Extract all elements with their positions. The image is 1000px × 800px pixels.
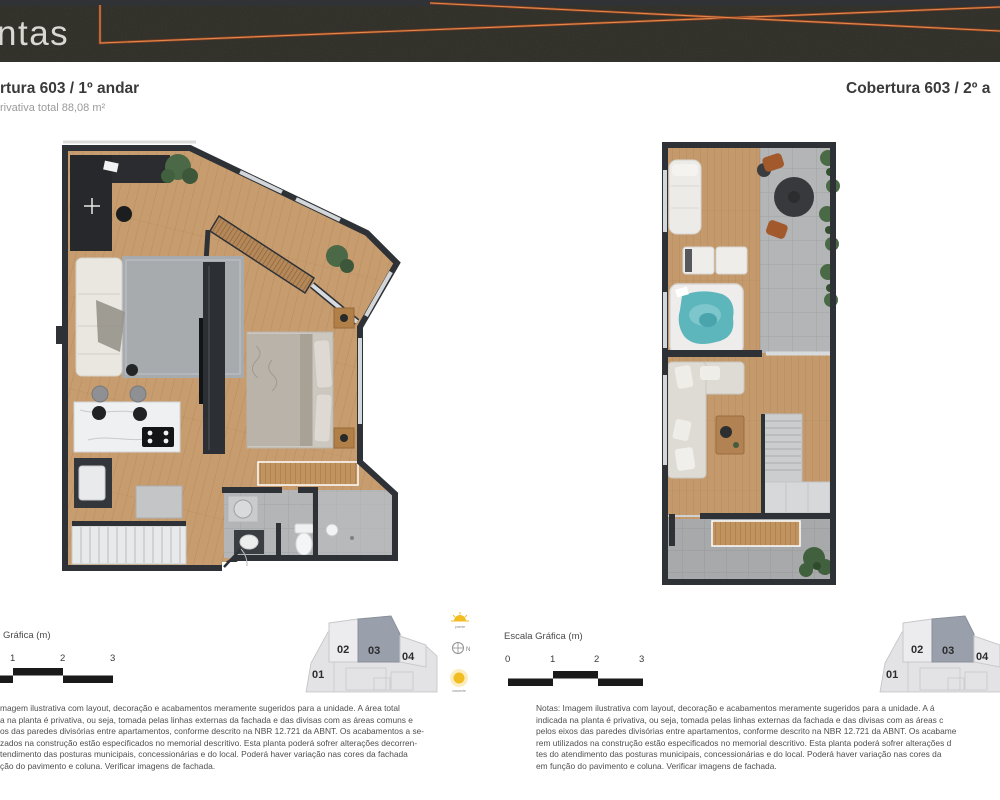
notes-line: os das paredes divisórias entre apartame… bbox=[0, 726, 482, 738]
scale-bar-left bbox=[0, 667, 116, 685]
pillow bbox=[675, 447, 696, 471]
terrace-divider-wall bbox=[665, 350, 762, 357]
stair-railing bbox=[761, 414, 765, 513]
office-chair bbox=[116, 206, 132, 222]
interior-wall bbox=[276, 523, 281, 558]
pillow bbox=[314, 394, 332, 443]
notes-line: Notas: Imagem ilustrativa com layout, de… bbox=[536, 703, 1000, 715]
shower-area bbox=[318, 492, 392, 556]
floor-drain bbox=[350, 536, 354, 540]
wall-pier bbox=[56, 326, 64, 344]
plant bbox=[182, 168, 198, 184]
scale-tick: 0 bbox=[505, 654, 510, 665]
slatted-bench bbox=[258, 462, 358, 485]
plan1-title: rtura 603 / 1º andar bbox=[0, 80, 139, 98]
sink bbox=[79, 466, 105, 500]
keyplan-unit-label: 04 bbox=[402, 651, 415, 663]
sofa bbox=[76, 258, 125, 376]
floor-plan-second-floor bbox=[650, 138, 845, 590]
tv-panel bbox=[199, 318, 203, 404]
notes-line: a na planta é privativa, ou seja, tomada… bbox=[0, 715, 482, 727]
balcony-divider-wall bbox=[700, 513, 830, 519]
notes-line: ção do pavimento e coluna. Verificar ima… bbox=[0, 761, 482, 773]
washer-door bbox=[234, 500, 252, 518]
notes-line: indicada na planta é privativa, ou seja,… bbox=[536, 715, 1000, 727]
rug bbox=[122, 256, 244, 378]
slatted-bench bbox=[712, 521, 800, 546]
notes-line: pelos eixos das paredes divisórias entre… bbox=[536, 726, 1000, 738]
scale-label-left: Gráfica (m) bbox=[3, 630, 51, 641]
sunrise-label: nascente bbox=[452, 689, 466, 693]
table-centerpiece bbox=[788, 191, 800, 203]
coffee-table bbox=[716, 416, 744, 454]
header-band: ntas bbox=[0, 0, 1000, 62]
nightstand bbox=[334, 428, 354, 448]
nightstand bbox=[334, 308, 354, 328]
sunset-label: poente bbox=[455, 625, 465, 629]
notes-line: tendimento das posturas municipais, conc… bbox=[0, 749, 482, 761]
kitchen-island bbox=[74, 402, 180, 452]
notes-line: zados na construção estão especificados … bbox=[0, 738, 482, 750]
scale-tick: 1 bbox=[10, 653, 15, 664]
plant bbox=[161, 169, 175, 183]
keyplan-unit-label: 03 bbox=[942, 645, 954, 657]
brand-wordmark-fragment: ntas bbox=[0, 14, 69, 54]
pillow bbox=[700, 366, 720, 380]
notes-line: rem utilizados na construção estão espec… bbox=[536, 738, 1000, 750]
cooktop bbox=[142, 427, 174, 447]
notes-line: em função do pavimento e coluna. Verific… bbox=[536, 761, 1000, 773]
scale-tick: 1 bbox=[550, 654, 555, 665]
notes-block-left: magem ilustrativa com layout, decoração … bbox=[0, 703, 482, 773]
toilet bbox=[296, 533, 312, 555]
keyplan-right: 01 02 03 04 bbox=[870, 610, 1000, 705]
door-leaf bbox=[669, 514, 675, 546]
stair-landing bbox=[764, 482, 830, 513]
scale-label-right: Escala Gráfica (m) bbox=[504, 631, 583, 642]
plan1-subtitle: rivativa total 88,08 m² bbox=[0, 102, 105, 114]
washbasin bbox=[240, 535, 258, 549]
interior-wall bbox=[222, 487, 282, 493]
interior-wall bbox=[313, 492, 318, 558]
scale-tick: 3 bbox=[110, 653, 115, 664]
keyplan-left: 01 02 03 04 bbox=[296, 610, 446, 705]
stairs bbox=[72, 521, 186, 564]
sink-bowl bbox=[92, 406, 106, 420]
shower-head bbox=[326, 524, 338, 536]
brochure-page: ntas rtura 603 / 1º andar rivativa total… bbox=[0, 0, 1000, 800]
orientation-icons: poente N nascente bbox=[448, 608, 498, 700]
scale-bar-right bbox=[504, 670, 646, 688]
keyplan-unit-label: 03 bbox=[368, 645, 380, 657]
bed bbox=[247, 332, 333, 448]
notes-line: magem ilustrativa com layout, decoração … bbox=[0, 703, 482, 715]
compass-north-label: N bbox=[466, 647, 470, 653]
side-table bbox=[126, 364, 138, 376]
compass-icon: N bbox=[453, 643, 471, 654]
sink-bowl bbox=[133, 407, 147, 421]
sunset-icon: poente bbox=[451, 612, 469, 629]
plan2-title: Cobertura 603 / 2º a bbox=[846, 80, 990, 98]
notes-block-right: Notas: Imagem ilustrativa com layout, de… bbox=[536, 703, 1000, 773]
scale-tick: 2 bbox=[60, 653, 65, 664]
lounge-chair bbox=[669, 160, 701, 234]
toilet-tank bbox=[295, 524, 313, 533]
notes-line: tes do atendimento das posturas municipa… bbox=[536, 749, 1000, 761]
floor-plan-first-floor bbox=[50, 135, 410, 580]
keyplan-unit-label: 01 bbox=[312, 669, 324, 681]
appliance bbox=[136, 486, 182, 518]
sun-icon: nascente bbox=[450, 669, 468, 693]
plant bbox=[340, 259, 354, 273]
scale-tick: 3 bbox=[639, 654, 644, 665]
jacuzzi bbox=[670, 284, 743, 354]
keyplan-unit-label: 01 bbox=[886, 669, 898, 681]
wardrobe-wall bbox=[203, 262, 225, 454]
pillow bbox=[313, 340, 332, 389]
keyplan-unit-label: 04 bbox=[976, 651, 989, 663]
header-concrete-texture bbox=[0, 0, 1000, 62]
scale-tick: 2 bbox=[594, 654, 599, 665]
keyplan-unit-label: 02 bbox=[337, 644, 349, 656]
keyplan-unit-label: 02 bbox=[911, 644, 923, 656]
